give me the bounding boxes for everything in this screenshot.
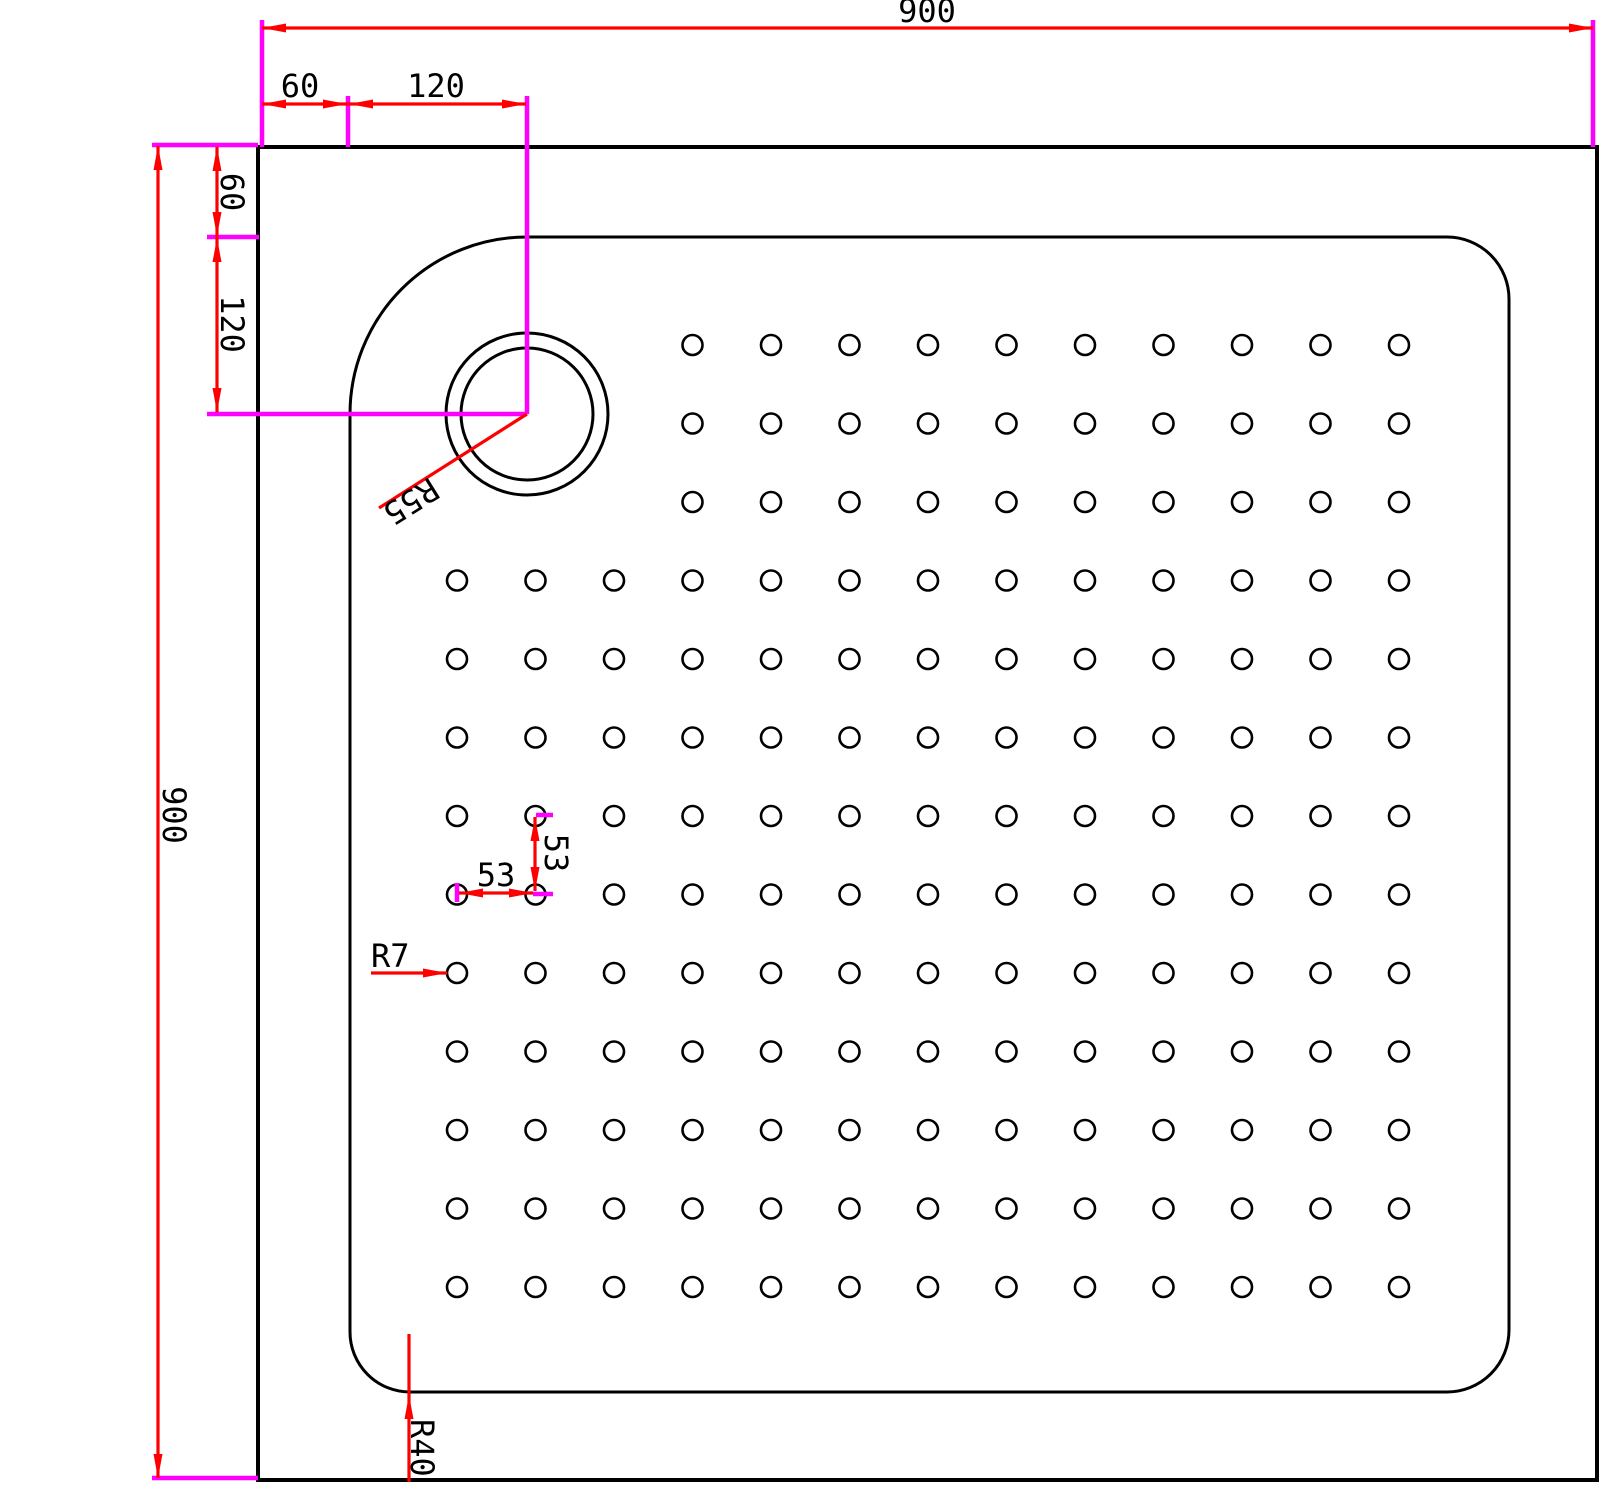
- anti-slip-dot: [918, 806, 938, 826]
- anti-slip-dot: [1075, 728, 1095, 748]
- anti-slip-dot: [683, 649, 703, 669]
- anti-slip-dot: [447, 1120, 467, 1140]
- anti-slip-dot: [761, 649, 781, 669]
- anti-slip-dot: [1311, 571, 1331, 591]
- dimension-labels: 900 60 120 900 60 120 R55 53 53 R7 R40: [155, 0, 956, 1477]
- anti-slip-dot: [604, 1199, 624, 1219]
- anti-slip-dot: [1389, 963, 1409, 983]
- anti-slip-dot: [1232, 414, 1252, 434]
- anti-slip-dot: [683, 571, 703, 591]
- anti-slip-dot: [1232, 649, 1252, 669]
- drawing-canvas: 900 60 120 900 60 120 R55 53 53 R7 R40: [0, 0, 1603, 1491]
- anti-slip-dot: [918, 1042, 938, 1062]
- dimension-arrowhead: [262, 24, 286, 33]
- anti-slip-dot: [1232, 728, 1252, 748]
- anti-slip-dot: [918, 571, 938, 591]
- anti-slip-dot: [1232, 885, 1252, 905]
- anti-slip-dot: [683, 492, 703, 512]
- anti-slip-dot: [997, 806, 1017, 826]
- anti-slip-dot: [918, 335, 938, 355]
- anti-slip-dot: [997, 1120, 1017, 1140]
- anti-slip-dot: [526, 728, 546, 748]
- anti-slip-dot: [918, 885, 938, 905]
- anti-slip-dot: [1389, 335, 1409, 355]
- anti-slip-dot: [683, 1120, 703, 1140]
- dimension-arrowhead: [1569, 24, 1593, 33]
- dimension-arrowhead: [154, 146, 163, 170]
- anti-slip-dot: [683, 885, 703, 905]
- anti-slip-dot: [761, 1199, 781, 1219]
- anti-slip-dot: [604, 885, 624, 905]
- anti-slip-dot: [447, 806, 467, 826]
- dimension-arrowhead: [213, 147, 222, 171]
- anti-slip-dot: [1154, 649, 1174, 669]
- anti-slip-dot: [1154, 414, 1174, 434]
- anti-slip-dot: [1154, 1042, 1174, 1062]
- anti-slip-dot: [1075, 649, 1095, 669]
- anti-slip-dot: [1311, 963, 1331, 983]
- dimension-arrowhead: [502, 100, 526, 109]
- anti-slip-dot: [840, 414, 860, 434]
- anti-slip-dot: [1154, 571, 1174, 591]
- anti-slip-dot: [1232, 963, 1252, 983]
- anti-slip-dot: [1389, 492, 1409, 512]
- anti-slip-dot: [1075, 414, 1095, 434]
- anti-slip-dot: [761, 571, 781, 591]
- label-dot-spacing-h: 53: [477, 856, 516, 894]
- anti-slip-dot: [840, 649, 860, 669]
- anti-slip-dot: [1311, 649, 1331, 669]
- anti-slip-dot: [1154, 1277, 1174, 1297]
- anti-slip-dot: [526, 649, 546, 669]
- anti-slip-dot: [683, 335, 703, 355]
- anti-slip-dot: [1075, 571, 1095, 591]
- anti-slip-dot: [1232, 492, 1252, 512]
- anti-slip-dot: [997, 728, 1017, 748]
- anti-slip-dot: [1311, 806, 1331, 826]
- anti-slip-dot: [840, 885, 860, 905]
- label-corner-radius: R40: [403, 1419, 441, 1477]
- anti-slip-dot: [1389, 649, 1409, 669]
- anti-slip-dot: [1311, 885, 1331, 905]
- shower-tray-technical-drawing: 900 60 120 900 60 120 R55 53 53 R7 R40: [0, 0, 1603, 1491]
- anti-slip-dot: [1154, 1199, 1174, 1219]
- label-drain-radius: R55: [376, 470, 445, 533]
- anti-slip-dot: [918, 1199, 938, 1219]
- dimension-arrowhead: [405, 1395, 414, 1419]
- anti-slip-dot: [683, 414, 703, 434]
- anti-slip-dot: [840, 1120, 860, 1140]
- anti-slip-dot: [1075, 885, 1095, 905]
- anti-slip-dot: [1075, 335, 1095, 355]
- anti-slip-dot: [1154, 492, 1174, 512]
- anti-slip-dot: [1232, 806, 1252, 826]
- label-top-120: 120: [407, 67, 465, 105]
- anti-slip-dot: [1389, 728, 1409, 748]
- anti-slip-dot-grid: [447, 335, 1409, 1297]
- anti-slip-dot: [1311, 492, 1331, 512]
- anti-slip-dot: [1389, 1042, 1409, 1062]
- anti-slip-dot: [1075, 963, 1095, 983]
- anti-slip-dot: [918, 649, 938, 669]
- label-top-60: 60: [281, 67, 320, 105]
- tray-geometry: [258, 147, 1597, 1480]
- anti-slip-dot: [918, 414, 938, 434]
- anti-slip-dot: [1389, 885, 1409, 905]
- anti-slip-dot: [1075, 1042, 1095, 1062]
- anti-slip-dot: [1232, 1277, 1252, 1297]
- anti-slip-dot: [997, 335, 1017, 355]
- anti-slip-dot: [447, 1277, 467, 1297]
- anti-slip-dot: [1389, 806, 1409, 826]
- anti-slip-dot: [447, 1199, 467, 1219]
- anti-slip-dot: [1389, 1277, 1409, 1297]
- label-overall-height: 900: [155, 786, 193, 844]
- anti-slip-dot: [526, 963, 546, 983]
- anti-slip-dot: [447, 1042, 467, 1062]
- anti-slip-dot: [840, 571, 860, 591]
- anti-slip-dot: [1075, 806, 1095, 826]
- anti-slip-dot: [526, 1120, 546, 1140]
- dimension-arrowhead: [213, 212, 222, 236]
- anti-slip-dot: [761, 1277, 781, 1297]
- anti-slip-dot: [604, 1042, 624, 1062]
- anti-slip-dot: [1075, 492, 1095, 512]
- anti-slip-dot: [761, 492, 781, 512]
- anti-slip-dot: [761, 728, 781, 748]
- dimension-arrowheads: [154, 24, 1594, 1479]
- anti-slip-dot: [1232, 1120, 1252, 1140]
- label-left-120: 120: [213, 295, 251, 353]
- anti-slip-dot: [526, 1199, 546, 1219]
- anti-slip-dot: [1389, 1120, 1409, 1140]
- anti-slip-dot: [1075, 1277, 1095, 1297]
- anti-slip-dot: [447, 571, 467, 591]
- anti-slip-dot: [840, 728, 860, 748]
- anti-slip-dot: [604, 1277, 624, 1297]
- anti-slip-dot: [526, 1042, 546, 1062]
- anti-slip-dot: [683, 1199, 703, 1219]
- anti-slip-dot: [997, 414, 1017, 434]
- anti-slip-dot: [761, 1042, 781, 1062]
- anti-slip-dot: [526, 1277, 546, 1297]
- anti-slip-dot: [604, 963, 624, 983]
- anti-slip-dot: [997, 963, 1017, 983]
- anti-slip-dot: [683, 806, 703, 826]
- anti-slip-dot: [447, 963, 467, 983]
- anti-slip-dot: [1389, 571, 1409, 591]
- anti-slip-dot: [918, 963, 938, 983]
- anti-slip-dot: [1232, 1199, 1252, 1219]
- anti-slip-dot: [761, 335, 781, 355]
- dimension-lines: [154, 24, 1594, 1483]
- anti-slip-dot: [1154, 1120, 1174, 1140]
- label-dot-radius: R7: [371, 937, 410, 975]
- anti-slip-dot: [997, 1277, 1017, 1297]
- anti-slip-dot: [1389, 414, 1409, 434]
- tray-outer-outline: [258, 147, 1597, 1480]
- anti-slip-dot: [918, 492, 938, 512]
- dimension-arrowhead: [213, 388, 222, 412]
- anti-slip-dot: [1311, 414, 1331, 434]
- dimension-arrowhead: [213, 238, 222, 262]
- anti-slip-dot: [1232, 335, 1252, 355]
- anti-slip-dot: [1154, 963, 1174, 983]
- anti-slip-dot: [840, 335, 860, 355]
- anti-slip-dot: [761, 806, 781, 826]
- anti-slip-dot: [918, 1277, 938, 1297]
- anti-slip-dot: [604, 1120, 624, 1140]
- anti-slip-dot: [997, 492, 1017, 512]
- anti-slip-dot: [1075, 1120, 1095, 1140]
- dimension-arrowhead: [154, 1454, 163, 1478]
- anti-slip-dot: [447, 649, 467, 669]
- anti-slip-dot: [604, 728, 624, 748]
- dimension-arrowhead: [349, 100, 373, 109]
- anti-slip-dot: [918, 728, 938, 748]
- dimension-arrowhead: [323, 100, 347, 109]
- anti-slip-dot: [997, 649, 1017, 669]
- anti-slip-dot: [761, 1120, 781, 1140]
- anti-slip-dot: [1311, 1277, 1331, 1297]
- anti-slip-dot: [761, 414, 781, 434]
- anti-slip-dot: [1154, 728, 1174, 748]
- anti-slip-dot: [840, 1042, 860, 1062]
- anti-slip-dot: [1232, 1042, 1252, 1062]
- anti-slip-dot: [997, 885, 1017, 905]
- anti-slip-dot: [1232, 571, 1252, 591]
- anti-slip-dot: [997, 571, 1017, 591]
- label-overall-width: 900: [898, 0, 956, 30]
- anti-slip-dot: [840, 963, 860, 983]
- anti-slip-dot: [1154, 806, 1174, 826]
- anti-slip-dot: [1075, 1199, 1095, 1219]
- anti-slip-dot: [1311, 1199, 1331, 1219]
- anti-slip-dot: [840, 492, 860, 512]
- anti-slip-dot: [997, 1199, 1017, 1219]
- anti-slip-dot: [997, 1042, 1017, 1062]
- anti-slip-dot: [918, 1120, 938, 1140]
- anti-slip-dot: [683, 1042, 703, 1062]
- anti-slip-dot: [526, 571, 546, 591]
- anti-slip-dot: [1389, 1199, 1409, 1219]
- label-dot-spacing-v: 53: [537, 834, 575, 873]
- anti-slip-dot: [604, 571, 624, 591]
- anti-slip-dot: [1311, 1120, 1331, 1140]
- anti-slip-dot: [447, 728, 467, 748]
- extension-lines: [152, 20, 1593, 1478]
- anti-slip-dot: [683, 963, 703, 983]
- anti-slip-dot: [683, 728, 703, 748]
- anti-slip-dot: [840, 806, 860, 826]
- label-left-60: 60: [213, 173, 251, 212]
- anti-slip-dot: [1311, 728, 1331, 748]
- anti-slip-dot: [761, 963, 781, 983]
- anti-slip-dot: [761, 885, 781, 905]
- anti-slip-dot: [604, 806, 624, 826]
- anti-slip-dot: [840, 1199, 860, 1219]
- anti-slip-dot: [840, 1277, 860, 1297]
- anti-slip-dot: [1154, 335, 1174, 355]
- anti-slip-dot: [683, 1277, 703, 1297]
- anti-slip-dot: [1311, 335, 1331, 355]
- anti-slip-dot: [604, 649, 624, 669]
- dimension-arrowhead: [423, 969, 447, 978]
- anti-slip-dot: [1311, 1042, 1331, 1062]
- anti-slip-dot: [1154, 885, 1174, 905]
